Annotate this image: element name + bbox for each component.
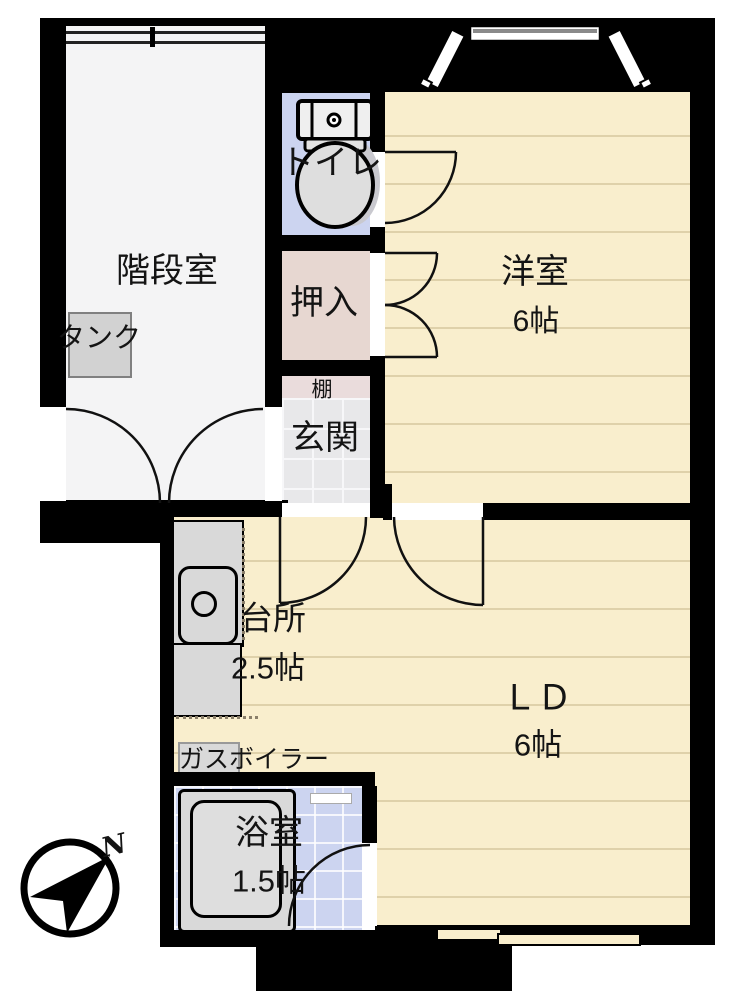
living-dining-size: 6帖	[514, 730, 562, 761]
toilet-tank-button-dot	[332, 118, 336, 122]
bay-window-right-pane	[606, 29, 647, 90]
entrance-door-arc	[280, 517, 366, 603]
floor-plan: 階段室 タンク トイレ 押入 棚 玄関 洋室 6帖 台所 2.5帖 ＬＤ 6帖 …	[0, 0, 729, 1002]
bathroom-size: 1.5帖	[232, 866, 306, 897]
ld-door-arc	[394, 517, 483, 605]
toilet-label: トイレ	[280, 146, 382, 180]
gas-boiler-label: ガスボイラー	[179, 748, 329, 773]
compass	[24, 842, 116, 934]
entrance-label: 玄関	[291, 421, 359, 455]
western-room-label: 洋室	[501, 255, 569, 289]
closet-label: 押入	[290, 286, 358, 320]
bathroom-label: 浴室	[235, 816, 303, 850]
living-dining-label: ＬＤ	[502, 681, 572, 716]
toilet-door-arc	[385, 152, 456, 223]
shelf-label: 棚	[312, 380, 333, 401]
stairwell-door-right-arc	[169, 409, 263, 503]
bay-window-left-pane	[424, 29, 465, 90]
kitchen-label: 台所	[240, 602, 306, 635]
kitchen-size: 2.5帖	[231, 653, 305, 684]
western-room-size: 6帖	[513, 307, 560, 337]
closet-door-upper-arc	[385, 253, 437, 305]
bay-window	[420, 26, 652, 93]
stairwell-door-left-arc	[66, 409, 160, 503]
stairwell-label: 階段室	[116, 254, 218, 288]
bay-window-top-pane	[470, 26, 600, 41]
closet-door-lower-arc	[385, 305, 437, 357]
tank-label: タンク	[57, 324, 141, 352]
